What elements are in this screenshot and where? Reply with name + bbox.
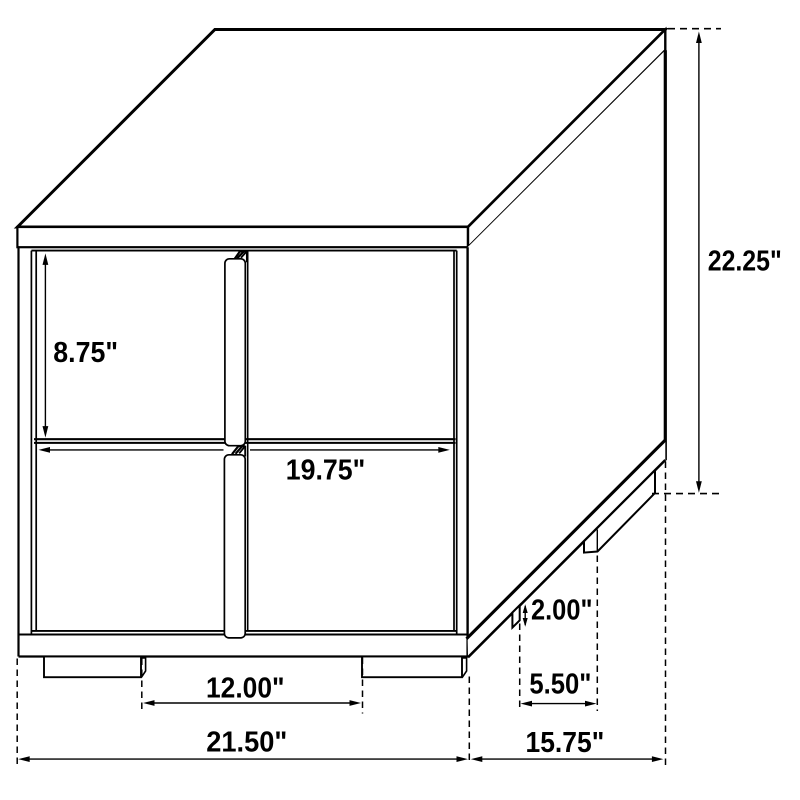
svg-text:12.00": 12.00" [206, 673, 285, 705]
svg-text:22.25": 22.25" [708, 246, 782, 278]
svg-text:2.00": 2.00" [531, 595, 593, 627]
svg-text:15.75": 15.75" [526, 727, 605, 759]
svg-text:19.75": 19.75" [286, 454, 366, 486]
svg-text:5.50": 5.50" [529, 669, 591, 701]
svg-text:8.75": 8.75" [53, 337, 118, 369]
svg-text:21.50": 21.50" [206, 726, 287, 758]
